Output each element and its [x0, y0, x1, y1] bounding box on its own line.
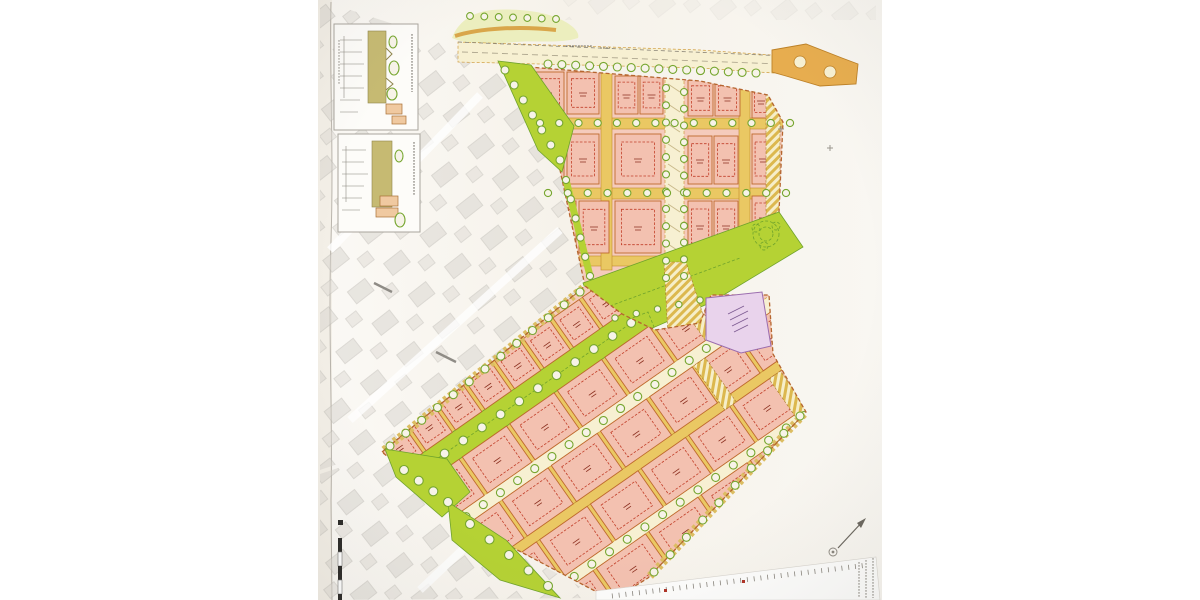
photo-vignette	[318, 0, 882, 600]
photo-of-site-plan	[0, 0, 1200, 600]
site-plan-canvas	[0, 0, 1200, 600]
